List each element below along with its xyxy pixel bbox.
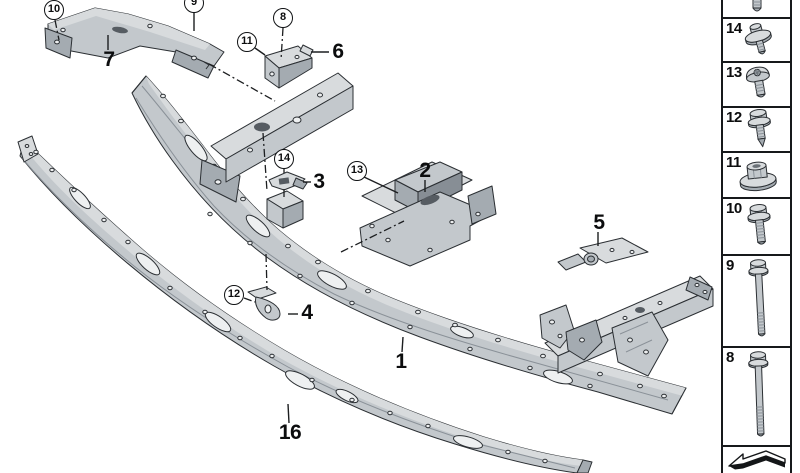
legend-box-12: 12: [721, 106, 792, 153]
legend-number: 8: [726, 349, 734, 366]
callout-12: 12: [224, 285, 244, 305]
guide-bracket: [248, 287, 280, 320]
direction-of-travel-arrow-icon: [726, 448, 788, 473]
side-bracket-left: [45, 8, 224, 78]
legend-number: 9: [726, 257, 734, 274]
parts-diagram-page: 10 9 8 11 14 13 12 7 6 3 2 5 4 1 16 14: [0, 0, 800, 473]
part-label-5: 5: [593, 211, 604, 235]
callout-14: 14: [274, 149, 294, 169]
part-label-4: 4: [301, 301, 312, 325]
callout-13: 13: [347, 161, 367, 181]
legend-number: 14: [726, 20, 742, 37]
legend-box-arrow: [721, 445, 792, 473]
hex-flange-bolt-long-icon: [737, 257, 777, 345]
legend-number: 11: [726, 154, 741, 171]
callout-11: 11: [237, 32, 257, 52]
legend-box-14: 14: [721, 17, 792, 63]
part-label-3: 3: [313, 170, 324, 194]
legend-box-8: 8: [721, 346, 792, 447]
right-extension-arm: [540, 276, 713, 376]
part-label-2: 2: [419, 159, 430, 183]
callout-8: 8: [273, 8, 293, 28]
legend-number: 10: [726, 200, 742, 217]
part-label-16: 16: [279, 421, 301, 445]
hex-flange-bolt-extra-long-icon: [737, 349, 777, 444]
small-bracket: [558, 238, 648, 270]
legend-number: 13: [726, 64, 742, 81]
part-label-6: 6: [332, 40, 343, 64]
callout-10: 10: [44, 0, 64, 20]
bolt-shaft-partial-icon: [745, 0, 769, 17]
spacer-plate: [269, 172, 307, 190]
legend-box-9: 9: [721, 254, 792, 348]
mount-box: [267, 191, 303, 228]
part-label-1: 1: [395, 350, 406, 374]
legend-number: 12: [726, 109, 742, 126]
legend-box-13: 13: [721, 61, 792, 108]
legend-box-11: 11: [721, 151, 792, 199]
part-label-7: 7: [103, 48, 114, 72]
legend-box-10: 10: [721, 197, 792, 256]
mount-bracket: [265, 45, 313, 88]
